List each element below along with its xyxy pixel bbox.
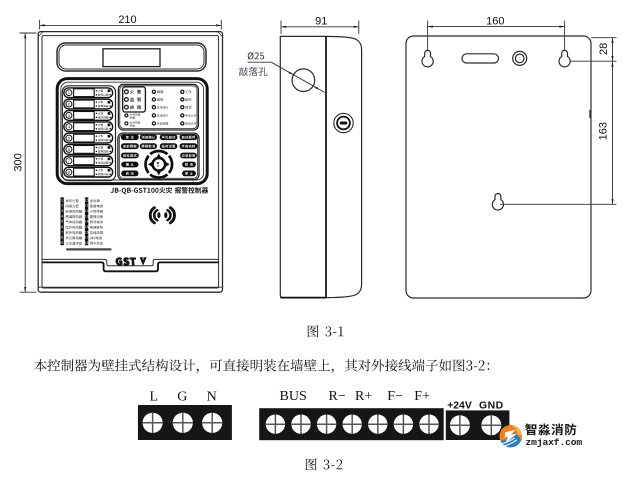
svg-text:2: 2 — [68, 101, 70, 106]
svg-text:1: 1 — [68, 90, 70, 95]
svg-text:11: 11 — [85, 204, 89, 208]
svg-text:15: 15 — [85, 225, 89, 229]
svg-text:28: 28 — [598, 43, 610, 55]
svg-text:300: 300 — [13, 153, 25, 171]
svg-text:7: 7 — [68, 158, 70, 163]
svg-text:5: 5 — [61, 220, 63, 224]
svg-text:18: 18 — [85, 241, 89, 245]
svg-text:5: 5 — [68, 135, 70, 140]
svg-text:9: 9 — [61, 241, 63, 245]
svg-text:1: 1 — [61, 198, 63, 202]
svg-text:6: 6 — [68, 147, 70, 152]
svg-text:2: 2 — [61, 204, 63, 208]
svg-text:3: 3 — [61, 209, 63, 213]
svg-text:8: 8 — [61, 236, 63, 240]
svg-text:16: 16 — [85, 230, 89, 234]
svg-text:12: 12 — [85, 209, 89, 213]
svg-text:163: 163 — [597, 122, 609, 140]
svg-text:6: 6 — [61, 225, 63, 229]
svg-text:10: 10 — [85, 198, 89, 202]
svg-text:13: 13 — [85, 214, 89, 218]
svg-text:7: 7 — [61, 230, 63, 234]
svg-text:3: 3 — [68, 113, 70, 118]
svg-text:zmjaxf.com: zmjaxf.com — [526, 437, 583, 448]
svg-text:4: 4 — [61, 214, 63, 218]
svg-text:14: 14 — [85, 220, 89, 224]
svg-text:91: 91 — [315, 16, 327, 28]
svg-text:17: 17 — [85, 236, 89, 240]
svg-text:160: 160 — [486, 15, 504, 27]
svg-text:8: 8 — [68, 170, 70, 175]
svg-text:210: 210 — [118, 14, 136, 26]
